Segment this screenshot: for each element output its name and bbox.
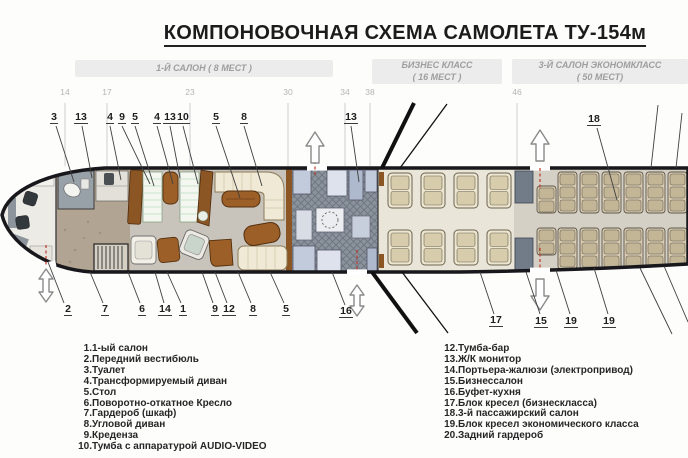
section-label-salon1: 1-Й САЛОН ( 8 МЕСТ ) (75, 60, 333, 77)
section-economy-line2: ( 50 МЕСТ) (512, 71, 688, 83)
callout-number: 12 (220, 303, 238, 315)
callout-number: 15 (532, 315, 550, 327)
callout-number: 7 (96, 303, 114, 315)
section-label-economy: 3-Й САЛОН ЭКОНОМКЛАСС ( 50 МЕСТ) (512, 59, 688, 84)
legend-right-column: 12.Тумба-бар 13.Ж/К монитор 14.Портьера-… (432, 344, 688, 442)
legend-item: 10.Тумба с аппаратурой AUDIO-VIDEO (68, 442, 433, 453)
cabin-interior (0, 166, 688, 274)
callout-number: 8 (244, 303, 262, 315)
callout-number: 14 (156, 303, 174, 315)
curtain (379, 172, 384, 186)
legend-item: 15.Бизнессалон (432, 377, 688, 388)
front-door-arrow (39, 269, 53, 302)
callout-number: 5 (126, 111, 144, 123)
section-label-business: БИЗНЕС КЛАСС ( 16 МЕСТ ) (372, 59, 502, 84)
curtain (379, 254, 384, 268)
legend-item: 4.Трансформируемый диван (68, 377, 433, 388)
transformable-divan (180, 172, 199, 222)
partition (515, 238, 533, 271)
table (198, 211, 208, 221)
callout-number: 2 (59, 303, 77, 315)
partition (515, 171, 533, 203)
legend-item: 16.Буфет-кухня (432, 388, 688, 399)
page-title-text: КОМПОНОВОЧНАЯ СХЕМА САМОЛЕТА ТУ-154м (164, 22, 646, 47)
callout-number: 5 (207, 111, 225, 123)
callout-number: 5 (277, 303, 295, 315)
pilot-seat (15, 215, 30, 230)
transformable-divan (143, 172, 162, 222)
callout-number: 13 (342, 111, 360, 123)
economy-top-door-arrow (531, 130, 549, 161)
callout-number: 17 (487, 314, 505, 326)
section-business-line2: ( 16 МЕСТ ) (372, 71, 502, 83)
section-salon1-text: 1-Й САЛОН ( 8 МЕСТ ) (156, 63, 252, 73)
callout-number: 16 (337, 305, 355, 317)
callout-number: 19 (562, 315, 580, 327)
wood-chair (157, 237, 180, 263)
callout-number: 10 (174, 111, 192, 123)
callout-number: 19 (600, 315, 618, 327)
callout-number: 3 (45, 111, 63, 123)
lcd-monitor (104, 173, 114, 185)
legend-item: 5.Стол (68, 388, 433, 399)
callout-number: 13 (72, 111, 90, 123)
legend-item: 20.Задний гардероб (432, 431, 688, 442)
callout-number: 18 (585, 113, 603, 125)
callout-number: 8 (235, 111, 253, 123)
tu154m-layout-scheme: КОМПОНОВОЧНАЯ СХЕМА САМОЛЕТА ТУ-154м 1-Й… (0, 0, 688, 458)
callout-number: 1 (174, 303, 192, 315)
corner-sofa (238, 246, 287, 270)
section-economy-line1: 3-Й САЛОН ЭКОНОМКЛАСС (512, 59, 688, 71)
galley-top-door-arrow (306, 132, 324, 163)
entry-stairs (94, 244, 128, 271)
section-business-line1: БИЗНЕС КЛАСС (372, 59, 502, 71)
callout-number: 6 (133, 303, 151, 315)
page-title: КОМПОНОВОЧНАЯ СХЕМА САМОЛЕТА ТУ-154м (110, 22, 688, 45)
legend-left-column: 1.1-ый салон 2.Передний вестибюль 3.Туал… (68, 344, 433, 453)
credenza (163, 172, 178, 204)
